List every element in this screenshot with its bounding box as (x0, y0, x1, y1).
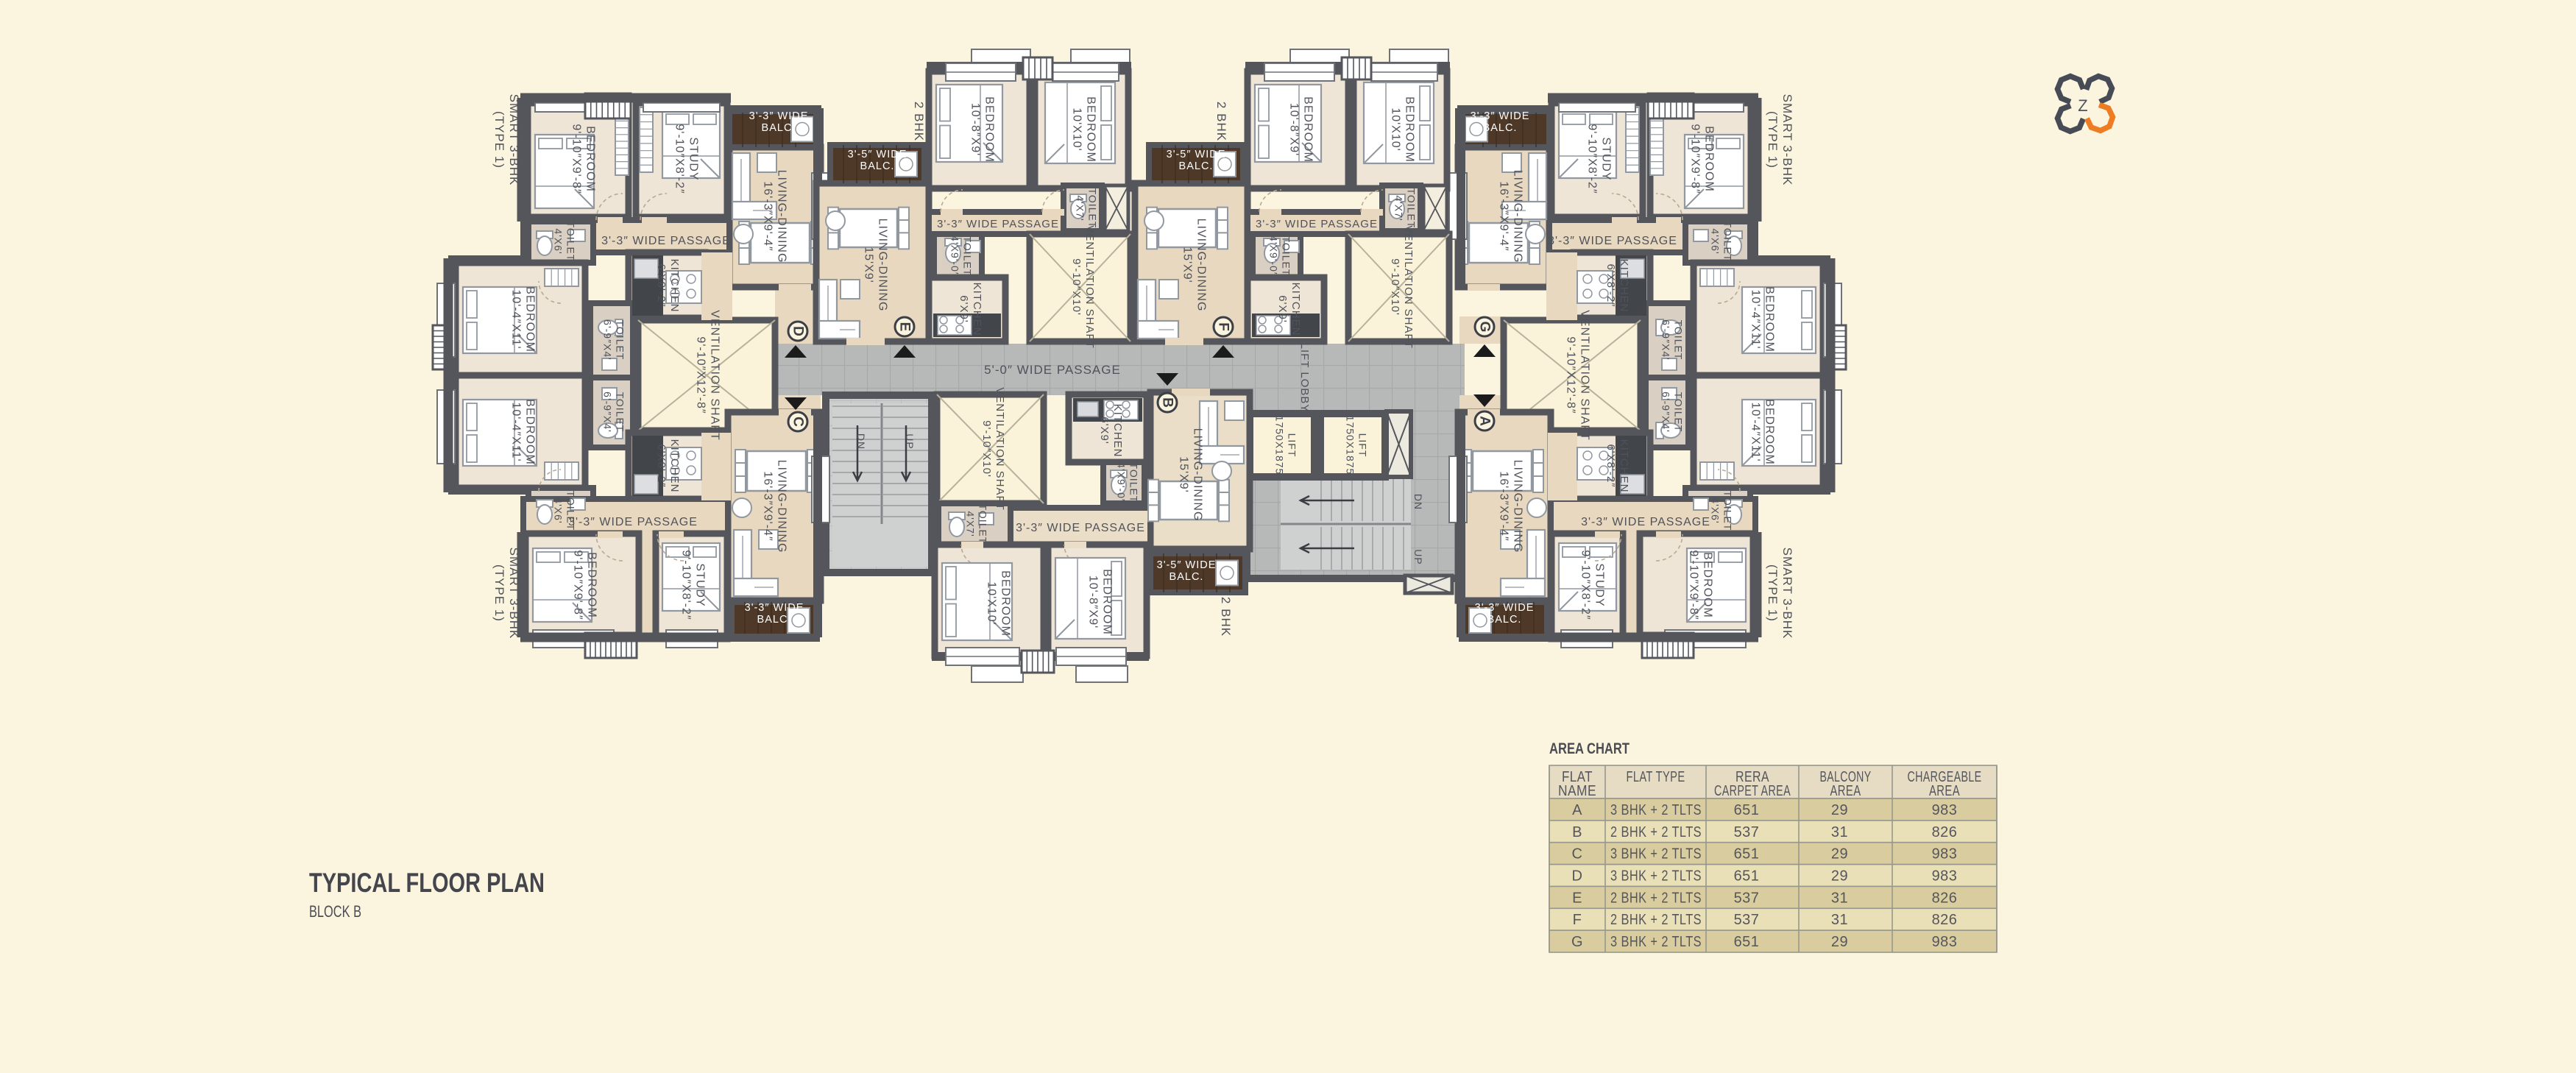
svg-text:TOILET: TOILET (1128, 463, 1140, 503)
svg-text:BEDROOM: BEDROOM (1085, 96, 1097, 163)
svg-text:3'-3″ WIDE PASSAGE: 3'-3″ WIDE PASSAGE (937, 218, 1059, 230)
svg-text:BEDROOM: BEDROOM (524, 286, 537, 353)
svg-text:A: A (1477, 416, 1493, 426)
svg-text:BLOCK B: BLOCK B (309, 902, 361, 921)
svg-text:DN: DN (1412, 494, 1424, 510)
svg-text:4'X9'-0″: 4'X9'-0″ (1116, 462, 1128, 503)
svg-text:FLAT TYPE: FLAT TYPE (1627, 769, 1685, 785)
svg-text:TOILET: TOILET (1673, 320, 1685, 361)
svg-text:10'-4″X11': 10'-4″X11' (1749, 289, 1762, 349)
svg-text:KITCHEN: KITCHEN (668, 439, 681, 493)
svg-text:5'-0″ WIDE PASSAGE: 5'-0″ WIDE PASSAGE (984, 363, 1121, 377)
svg-text:STUDY: STUDY (1593, 563, 1606, 606)
svg-text:3'-5″ WIDE: 3'-5″ WIDE (848, 149, 907, 160)
svg-text:KITCHEN: KITCHEN (1111, 404, 1124, 458)
svg-text:9'-10″X8'-2″: 9'-10″X8'-2″ (1579, 550, 1592, 620)
svg-text:BEDROOM: BEDROOM (1702, 552, 1714, 618)
svg-text:537: 537 (1734, 912, 1760, 928)
svg-text:826: 826 (1932, 824, 1958, 840)
svg-text:6'X9': 6'X9' (1098, 417, 1111, 444)
svg-text:E: E (1572, 890, 1582, 906)
svg-text:29: 29 (1831, 846, 1848, 863)
svg-text:(TYPE 1): (TYPE 1) (492, 564, 506, 622)
svg-text:C: C (790, 417, 806, 427)
svg-text:TOILET: TOILET (962, 236, 974, 277)
svg-text:651: 651 (1734, 802, 1760, 818)
svg-text:10'-4″X11': 10'-4″X11' (1749, 402, 1762, 461)
svg-text:3'-3″ WIDE PASSAGE: 3'-3″ WIDE PASSAGE (568, 516, 698, 528)
svg-text:AREA CHART: AREA CHART (1549, 740, 1630, 757)
svg-text:9'-10″X10': 9'-10″X10' (980, 420, 993, 478)
svg-text:4'X7': 4'X7' (965, 511, 977, 536)
svg-text:BALC.: BALC. (1487, 614, 1522, 626)
svg-text:537: 537 (1734, 890, 1760, 906)
svg-text:6'-9″X4': 6'-9″X4' (602, 319, 614, 361)
svg-text:2 BHK + 2 TLTS: 2 BHK + 2 TLTS (1610, 890, 1702, 906)
svg-text:SMART 3-BHK: SMART 3-BHK (1780, 548, 1794, 640)
svg-text:10'-4″X11': 10'-4″X11' (510, 402, 523, 461)
svg-text:LIVING-DINING: LIVING-DINING (877, 219, 889, 312)
svg-text:TOILET: TOILET (1406, 188, 1418, 229)
svg-text:6'-9″X4': 6'-9″X4' (1660, 319, 1672, 361)
svg-text:15'X9': 15'X9' (1178, 456, 1190, 492)
svg-text:3'-3″ WIDE PASSAGE: 3'-3″ WIDE PASSAGE (1581, 516, 1710, 528)
svg-text:G: G (1477, 322, 1493, 333)
svg-text:3'-3″ WIDE: 3'-3″ WIDE (1475, 602, 1535, 614)
svg-text:BEDROOM: BEDROOM (983, 96, 996, 163)
svg-text:16'-3″X9'-4″: 16'-3″X9'-4″ (762, 471, 774, 541)
svg-text:TOILET: TOILET (565, 222, 577, 262)
svg-text:E: E (897, 322, 913, 332)
svg-text:6'X9': 6'X9' (958, 295, 970, 322)
svg-text:4'X7': 4'X7' (1075, 195, 1086, 221)
svg-text:TOILET: TOILET (615, 392, 626, 433)
svg-text:10'X10': 10'X10' (1390, 107, 1402, 151)
svg-text:3'-3″ WIDE: 3'-3″ WIDE (1471, 110, 1530, 122)
svg-text:3'-3″ WIDE PASSAGE: 3'-3″ WIDE PASSAGE (1016, 522, 1145, 534)
svg-text:9'-10″X9'-8″: 9'-10″X9'-8″ (572, 550, 584, 620)
svg-text:KITCHEN: KITCHEN (971, 283, 983, 336)
svg-text:9'-10″X8'-2″: 9'-10″X8'-2″ (673, 124, 686, 194)
svg-text:6'-9″X4': 6'-9″X4' (602, 392, 614, 433)
svg-text:AREA: AREA (1929, 783, 1960, 799)
svg-text:4'X9'-0″: 4'X9'-0″ (1268, 236, 1280, 277)
svg-text:BEDROOM: BEDROOM (1763, 399, 1776, 465)
svg-text:BALC.: BALC. (1179, 160, 1214, 172)
svg-text:LIVING-DINING: LIVING-DINING (1512, 460, 1524, 553)
svg-text:16'-3″X9'-4″: 16'-3″X9'-4″ (762, 181, 774, 251)
svg-text:KITCHEN: KITCHEN (1618, 259, 1630, 313)
svg-text:LIFT: LIFT (1357, 433, 1369, 458)
svg-text:3'-3″ WIDE: 3'-3″ WIDE (749, 110, 809, 122)
svg-text:TOILET: TOILET (977, 504, 989, 545)
svg-text:3'-3″ WIDE PASSAGE: 3'-3″ WIDE PASSAGE (1256, 218, 1378, 230)
svg-text:BALC.: BALC. (860, 160, 895, 172)
svg-text:TOILET: TOILET (1281, 236, 1292, 277)
svg-text:KITCHEN: KITCHEN (668, 259, 681, 313)
svg-text:Z: Z (2078, 96, 2087, 115)
svg-text:983: 983 (1932, 934, 1958, 950)
svg-text:LIVING-DINING: LIVING-DINING (1192, 428, 1204, 522)
svg-text:STUDY: STUDY (687, 137, 700, 180)
svg-text:LIVING-DINING: LIVING-DINING (776, 460, 788, 553)
svg-text:VENTILATION SHAFT: VENTILATION SHAFT (1402, 225, 1415, 349)
svg-text:10'X10': 10'X10' (1071, 107, 1083, 151)
svg-text:BALC.: BALC. (757, 614, 792, 626)
svg-text:31: 31 (1831, 890, 1848, 906)
svg-text:9'-10″X12'-8″: 9'-10″X12'-8″ (1565, 336, 1577, 414)
svg-text:826: 826 (1932, 912, 1958, 928)
svg-text:BEDROOM: BEDROOM (1703, 126, 1716, 192)
svg-text:UP: UP (904, 433, 916, 449)
svg-text:TYPICAL FLOOR PLAN: TYPICAL FLOOR PLAN (309, 868, 545, 898)
svg-text:BALC.: BALC. (762, 122, 796, 134)
svg-text:4'X6': 4'X6' (553, 228, 565, 254)
svg-text:6'X9': 6'X9' (1276, 295, 1289, 322)
svg-text:2 BHK: 2 BHK (1214, 102, 1228, 141)
svg-text:NAME: NAME (1558, 783, 1596, 799)
svg-text:UP: UP (1412, 549, 1424, 564)
svg-text:10'-4″X11': 10'-4″X11' (510, 289, 523, 349)
svg-text:VENTILATION SHAFT: VENTILATION SHAFT (1579, 310, 1591, 441)
svg-text:983: 983 (1932, 802, 1958, 818)
svg-text:BALC.: BALC. (1483, 122, 1518, 134)
svg-text:9'-10″X9'-8″: 9'-10″X9'-8″ (1689, 124, 1702, 194)
svg-text:STUDY: STUDY (694, 563, 707, 606)
svg-text:(TYPE 1): (TYPE 1) (492, 111, 506, 169)
svg-text:AREA: AREA (1830, 783, 1861, 799)
svg-text:4'X6': 4'X6' (1710, 497, 1722, 523)
svg-text:(TYPE 1): (TYPE 1) (1766, 564, 1780, 622)
svg-text:9'-10″X8'-2″: 9'-10″X8'-2″ (1586, 124, 1599, 194)
svg-text:16'-3″X9'-4″: 16'-3″X9'-4″ (1498, 181, 1510, 251)
svg-text:BEDROOM: BEDROOM (586, 552, 598, 618)
svg-text:3 BHK + 2 TLTS: 3 BHK + 2 TLTS (1610, 846, 1702, 863)
svg-text:1750X1875: 1750X1875 (1345, 416, 1356, 475)
svg-text:10'-8″X9': 10'-8″X9' (969, 103, 982, 156)
svg-text:KITCHEN: KITCHEN (1618, 439, 1630, 493)
svg-text:4'X6': 4'X6' (1710, 228, 1722, 254)
svg-text:6'-9″X4': 6'-9″X4' (1660, 392, 1672, 433)
svg-text:BEDROOM: BEDROOM (1763, 286, 1776, 353)
svg-text:(TYPE 1): (TYPE 1) (1766, 111, 1780, 169)
svg-text:3 BHK + 2 TLTS: 3 BHK + 2 TLTS (1610, 802, 1702, 818)
svg-text:10'X10': 10'X10' (986, 581, 998, 625)
svg-text:TOILET: TOILET (1087, 188, 1099, 229)
svg-text:983: 983 (1932, 846, 1958, 863)
svg-text:15'X9': 15'X9' (863, 247, 875, 283)
svg-text:LIFT LOBBY: LIFT LOBBY (1298, 343, 1311, 413)
svg-text:537: 537 (1734, 824, 1760, 840)
svg-text:F: F (1573, 912, 1582, 928)
svg-text:6'X8'-2″: 6'X8'-2″ (1604, 444, 1617, 487)
svg-text:3'-3″ WIDE PASSAGE: 3'-3″ WIDE PASSAGE (601, 235, 731, 247)
svg-text:3'-3″ WIDE: 3'-3″ WIDE (745, 602, 804, 614)
svg-text:C: C (1572, 846, 1583, 863)
svg-text:29: 29 (1831, 934, 1848, 950)
svg-text:2 BHK + 2 TLTS: 2 BHK + 2 TLTS (1610, 912, 1702, 928)
svg-text:LIFT: LIFT (1287, 433, 1298, 458)
svg-text:TOILET: TOILET (615, 320, 626, 361)
svg-text:9'-10″X10': 9'-10″X10' (1070, 258, 1083, 316)
svg-text:D: D (790, 326, 806, 336)
svg-text:3'-3″ WIDE PASSAGE: 3'-3″ WIDE PASSAGE (1548, 235, 1677, 247)
svg-text:SMART 3-BHK: SMART 3-BHK (507, 548, 521, 640)
svg-text:BEDROOM: BEDROOM (584, 126, 597, 192)
svg-text:651: 651 (1734, 934, 1760, 950)
svg-text:BEDROOM: BEDROOM (999, 570, 1012, 637)
svg-text:LIVING-DINING: LIVING-DINING (776, 170, 788, 263)
svg-text:15'X9': 15'X9' (1181, 247, 1194, 283)
svg-text:STUDY: STUDY (1600, 137, 1613, 180)
svg-text:3'-5″ WIDE: 3'-5″ WIDE (1167, 149, 1226, 160)
svg-text:VENTILATION SHAFT: VENTILATION SHAFT (1083, 225, 1096, 349)
svg-text:2 BHK: 2 BHK (1219, 597, 1233, 637)
svg-text:3 BHK + 2 TLTS: 3 BHK + 2 TLTS (1610, 868, 1702, 885)
svg-text:LIVING-DINING: LIVING-DINING (1512, 170, 1524, 263)
svg-text:F: F (1216, 322, 1231, 331)
svg-text:9'-10″X12'-8″: 9'-10″X12'-8″ (695, 336, 707, 414)
svg-text:4'X9'-0″: 4'X9'-0″ (949, 236, 961, 277)
svg-text:A: A (1572, 802, 1582, 818)
svg-text:SMART 3-BHK: SMART 3-BHK (507, 94, 521, 186)
svg-text:1750X1875: 1750X1875 (1274, 416, 1286, 475)
svg-text:31: 31 (1831, 824, 1848, 840)
svg-text:DN: DN (855, 433, 867, 450)
svg-text:10'-8″X9': 10'-8″X9' (1288, 103, 1301, 156)
svg-text:29: 29 (1831, 802, 1848, 818)
svg-text:TOILET: TOILET (1673, 392, 1685, 433)
svg-text:31: 31 (1831, 912, 1848, 928)
svg-text:SMART 3-BHK: SMART 3-BHK (1780, 94, 1794, 186)
svg-text:29: 29 (1831, 868, 1848, 885)
svg-text:D: D (1572, 868, 1583, 885)
svg-text:BEDROOM: BEDROOM (524, 399, 537, 465)
svg-text:4'X6': 4'X6' (553, 497, 565, 523)
svg-text:VENTILATION SHAFT: VENTILATION SHAFT (709, 310, 721, 441)
svg-text:VENTILATION SHAFT: VENTILATION SHAFT (994, 387, 1006, 511)
svg-text:LIVING-DINING: LIVING-DINING (1195, 219, 1208, 312)
svg-text:BEDROOM: BEDROOM (1302, 96, 1314, 163)
svg-text:9'-10″X8'-2″: 9'-10″X8'-2″ (680, 550, 693, 620)
svg-text:B: B (1572, 824, 1582, 840)
svg-text:16'-3″X9'-4″: 16'-3″X9'-4″ (1498, 471, 1510, 541)
svg-text:2 BHK: 2 BHK (912, 102, 926, 141)
svg-text:826: 826 (1932, 890, 1958, 906)
svg-text:6'X8'-2″: 6'X8'-2″ (1604, 263, 1617, 307)
svg-text:9'-10″X9'-8″: 9'-10″X9'-8″ (570, 124, 583, 194)
svg-text:CARPET AREA: CARPET AREA (1714, 783, 1791, 799)
svg-text:G: G (1571, 934, 1583, 950)
svg-text:6'X8'-2″: 6'X8'-2″ (655, 263, 668, 307)
svg-text:983: 983 (1932, 868, 1958, 885)
svg-text:3'-5″ WIDE: 3'-5″ WIDE (1157, 559, 1217, 571)
svg-text:651: 651 (1734, 868, 1760, 885)
svg-text:TOILET: TOILET (1722, 222, 1734, 262)
svg-text:3 BHK + 2 TLTS: 3 BHK + 2 TLTS (1610, 934, 1702, 950)
svg-text:4'X7': 4'X7' (1393, 195, 1405, 221)
svg-text:BEDROOM: BEDROOM (1101, 569, 1114, 635)
svg-text:9'-10″X10': 9'-10″X10' (1389, 258, 1401, 316)
svg-text:9'-10″X9'-8″: 9'-10″X9'-8″ (1688, 550, 1700, 620)
svg-text:2 BHK + 2 TLTS: 2 BHK + 2 TLTS (1610, 824, 1702, 840)
svg-text:6'X8'-2″: 6'X8'-2″ (655, 444, 668, 487)
svg-text:KITCHEN: KITCHEN (1289, 283, 1302, 336)
svg-text:651: 651 (1734, 846, 1760, 863)
svg-text:TOILET: TOILET (1722, 491, 1734, 531)
svg-text:10'-8″X9': 10'-8″X9' (1087, 576, 1100, 628)
svg-text:BALC.: BALC. (1170, 571, 1204, 583)
svg-text:B: B (1160, 397, 1175, 408)
svg-text:BEDROOM: BEDROOM (1404, 96, 1416, 163)
